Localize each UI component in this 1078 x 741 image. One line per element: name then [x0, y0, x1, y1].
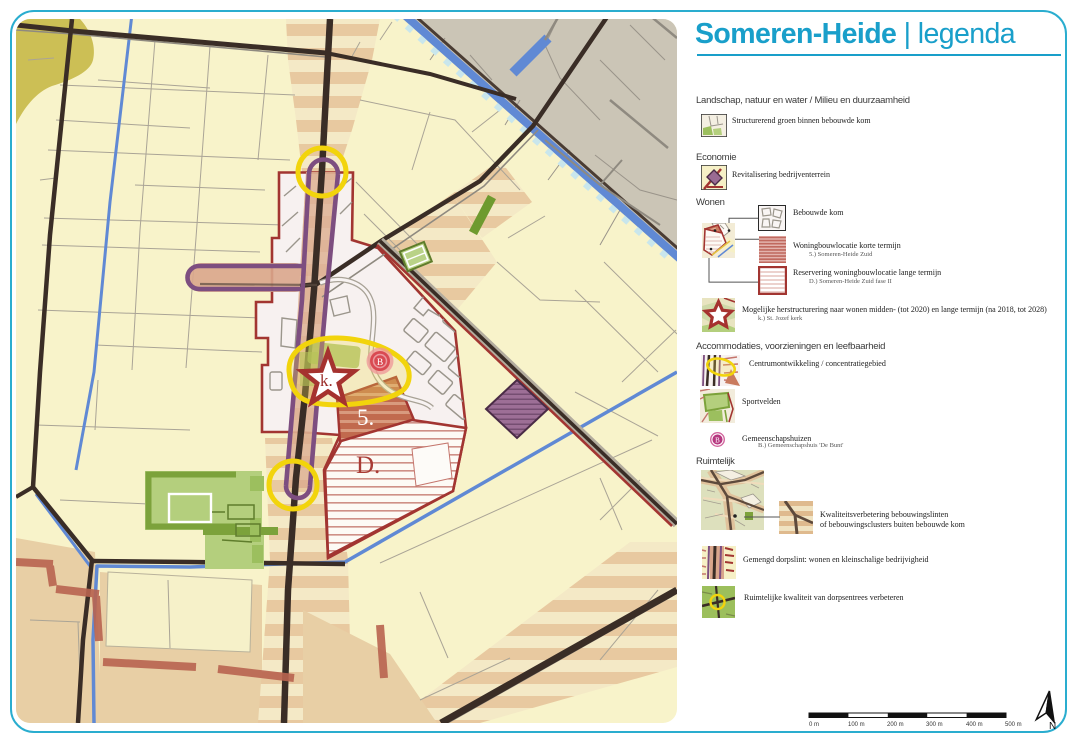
svg-text:D.: D. [356, 452, 380, 479]
svg-text:300 m: 300 m [926, 722, 943, 728]
svg-text:100 m: 100 m [848, 722, 865, 728]
svg-text:500 m: 500 m [1005, 722, 1022, 728]
svg-text:5.: 5. [357, 405, 374, 430]
svg-text:200 m: 200 m [887, 722, 904, 728]
svg-text:400 m: 400 m [966, 722, 983, 728]
svg-text:0 m: 0 m [809, 722, 819, 728]
svg-text:B: B [377, 358, 383, 368]
svg-text:N: N [1049, 721, 1056, 730]
svg-text:k.: k. [320, 371, 333, 390]
svg-text:B: B [715, 437, 720, 445]
